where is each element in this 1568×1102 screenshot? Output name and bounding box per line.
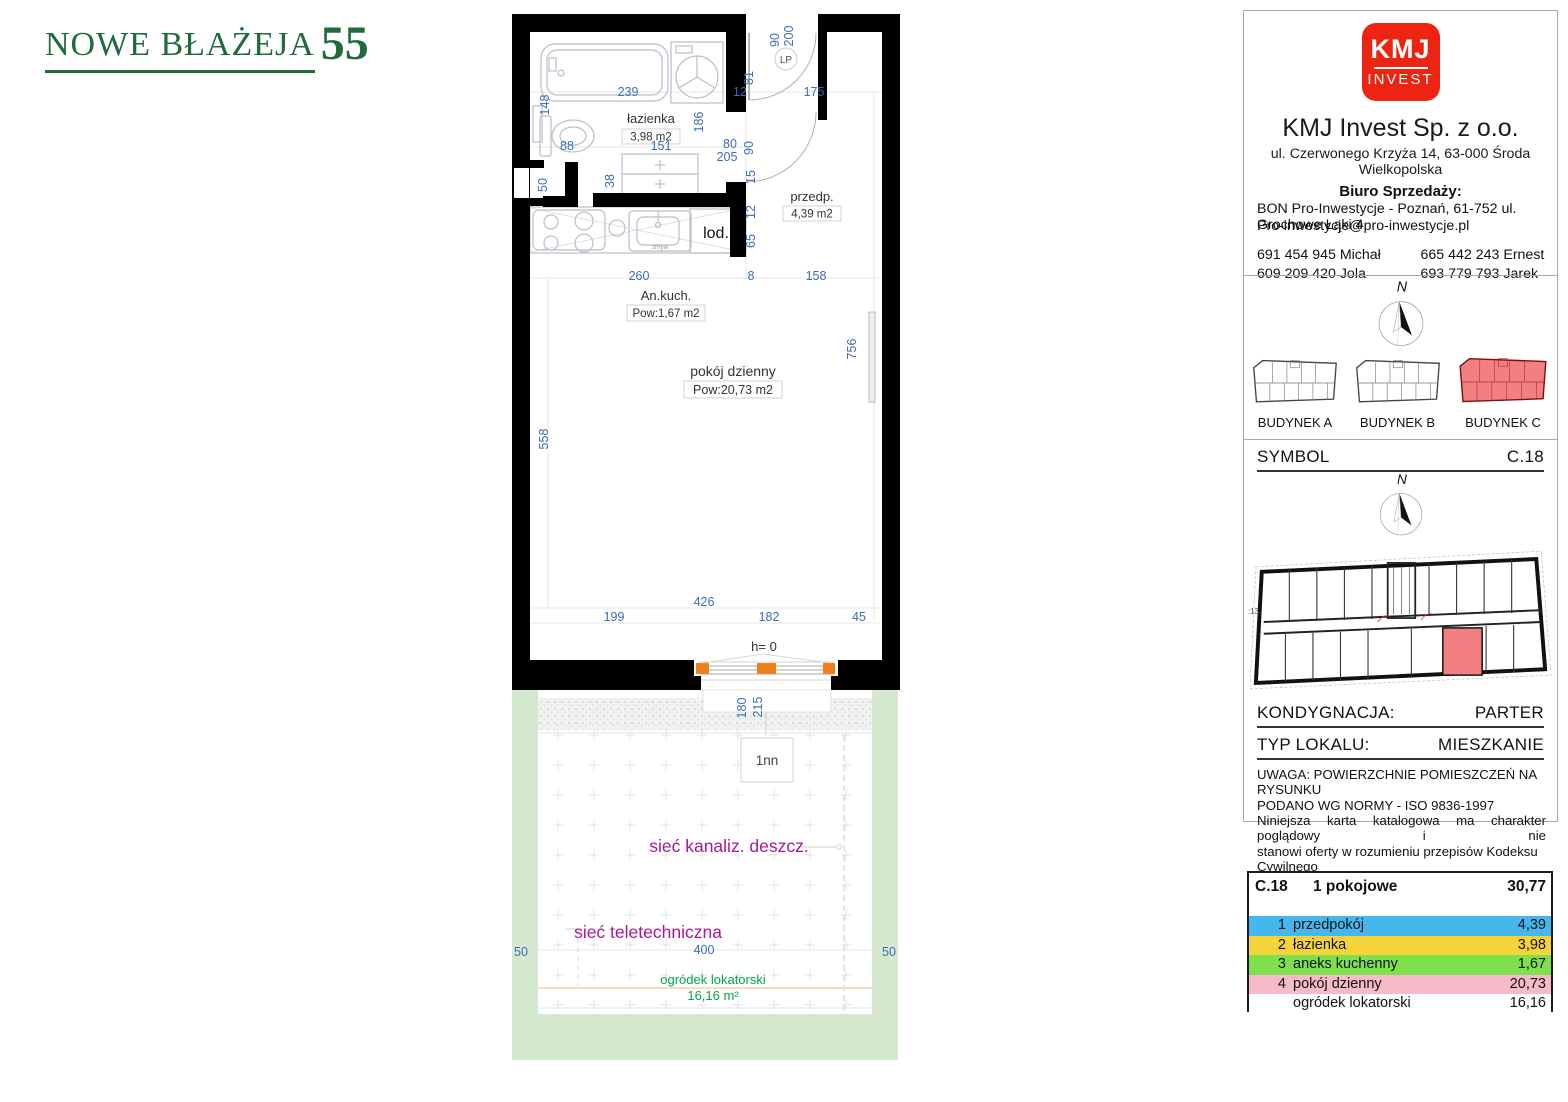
dim-88: 88 [560,139,574,153]
row-name: przedpokój [1293,916,1518,936]
dim-8: 8 [748,269,755,283]
disclaimer-line4: stanowi oferty w rozumieniu przepisów Ko… [1257,844,1546,875]
type-row: TYP LOKALU: MIESZKANIE [1257,735,1544,760]
window-marker-center [757,663,776,674]
dim-65: 65 [744,234,758,248]
row-area: 4,39 [1518,916,1551,936]
dim-50: 50 [536,178,550,192]
compass-icon: N [1368,471,1434,543]
dim-12k: 12 [744,205,758,219]
compass-icon: N [1366,278,1436,354]
garden-area-label: 16,16 m² [687,988,739,1003]
row-num: 4 [1249,975,1293,995]
kmj-logo-rule [1374,67,1428,69]
phone-jarek: 693 779 793 Jarek [1421,266,1549,282]
buildings-row: BUDYNEK A BUDYNEK B [1250,355,1551,430]
garden-strip-bottom [512,1014,898,1060]
hall-area: 4,39 m2 [791,209,833,221]
storm-sewer-label: sieć kanaliz. deszcz. [649,836,809,856]
dim-bath-door-h: 205 [717,150,738,164]
dim-12-top: 12 [733,85,747,99]
dim-180: 180 [735,698,749,719]
building-a: BUDYNEK A [1250,357,1340,430]
garden-marker-label: 1nn [756,753,779,768]
living-name: pokój dzienny [690,363,776,379]
company-address: ul. Czerwonego Krzyża 14, 63-000 Środa W… [1244,146,1557,178]
kitchen-area: Pow:1,67 m2 [632,308,699,320]
building-c-label: BUDYNEK C [1455,415,1551,430]
row-area: 16,16 [1510,994,1551,1014]
garden-strip-left [512,690,538,1060]
sink-label: zmyw [652,244,669,251]
disclaimer-line3: Niniejsza karta katalogowa ma charakter … [1257,813,1546,844]
building-a-label: BUDYNEK A [1250,415,1340,430]
area-table: C.18 1 pokojowe 30,77 1 przedpokój 4,39 … [1247,871,1553,1012]
svg-text:N: N [1397,472,1407,487]
apartment-floor [512,14,900,690]
type-value: MIESZKANIE [1438,735,1544,755]
dim-175: 175 [804,85,825,99]
dim-door-w: 90 [768,33,782,47]
row-name: pokój dzienny [1293,975,1510,995]
type-label: TYP LOKALU: [1257,735,1370,755]
window-height-label: h= 0 [751,639,777,654]
dim-199: 199 [604,610,625,624]
dim-bath-door-w: 80 [723,137,737,151]
storey-plan: :13 [1248,543,1553,699]
living-area: Pow:20,73 m2 [693,383,773,397]
table-total-area: 30,77 [1507,878,1546,902]
row-area: 1,67 [1518,955,1551,975]
dim-558: 558 [537,429,551,450]
symbol-row: SYMBOL C.18 [1257,447,1544,472]
table-spacer [1249,902,1551,916]
row-name: aneks kuchenny [1293,955,1518,975]
sales-office-heading: Biuro Sprzedaży: [1244,183,1557,200]
dim-151: 151 [651,139,672,153]
info-panel: KMJ INVEST KMJ Invest Sp. z o.o. ul. Cze… [1243,10,1558,822]
dim-90b: 90 [742,141,756,155]
company-name: KMJ Invest Sp. z o.o. [1244,114,1557,143]
kmj-logo-subtext: INVEST [1362,71,1440,88]
dim-garden-50-right: 50 [882,945,896,959]
phone-michal: 691 454 945 Michał [1257,247,1421,263]
catalog-page: NOWE BŁAŻEJA55 [0,0,1568,1102]
kmj-logo-text: KMJ [1362,34,1440,65]
threshold [703,690,831,712]
row-num: 1 [1249,916,1293,936]
entry-point-label: LP [780,55,793,66]
dim-158: 158 [806,269,827,283]
table-row-kitchen: 3 aneks kuchenny 1,67 [1249,955,1551,975]
garden-strip-right [872,690,898,1060]
disclaimer-line2: PODANO WG NORMY - ISO 9836-1997 [1257,798,1546,813]
dim-door-h: 200 [782,26,796,47]
window-marker-left [696,663,709,674]
dim-81: 81 [742,71,756,85]
floor-value: PARTER [1475,703,1544,723]
phone-list: 691 454 945 Michał 665 442 243 Ernest 60… [1257,247,1549,282]
row-area: 20,73 [1510,975,1551,995]
garden-area: 1nn sieć kanaliz. deszcz. sieć teletechn… [512,690,898,1060]
dim-garden-50-left: 50 [514,945,528,959]
dim-182: 182 [759,610,780,624]
dim-148: 148 [538,95,552,116]
building-b: BUDYNEK B [1353,357,1443,430]
dim-260: 260 [629,269,650,283]
hall-name: przedp. [790,189,833,204]
dim-426: 426 [694,595,715,609]
divider [1244,275,1557,276]
row-area: 3,98 [1518,936,1551,956]
row-name: łazienka [1293,936,1518,956]
row-name: ogródek lokatorski [1293,994,1510,1014]
bathroom-name: łazienka [627,111,675,126]
phone-ernest: 665 442 243 Ernest [1421,247,1549,263]
garden-name-label: ogródek lokatorski [660,972,766,987]
dim-garden-400: 400 [694,943,715,957]
row-num: 2 [1249,936,1293,956]
window-marker-right [823,663,835,674]
dim-756: 756 [845,339,859,360]
floor-label: KONDYGNACJA: [1257,703,1395,723]
svg-text:N: N [1396,280,1407,296]
row-num: 3 [1249,955,1293,975]
telecom-label: sieć teletechniczna [574,922,722,942]
dim-215: 215 [751,697,765,718]
radiator [869,312,875,402]
symbol-label: SYMBOL [1257,447,1330,467]
row-num [1249,994,1293,1014]
symbol-value: C.18 [1507,447,1544,467]
table-row-living: 4 pokój dzienny 20,73 [1249,975,1551,995]
kmj-logo: KMJ INVEST [1362,23,1440,101]
plan-scale-note: :13 [1248,607,1260,616]
dim-15: 15 [744,170,758,184]
floor-row: KONDYGNACJA: PARTER [1257,703,1544,728]
dim-45: 45 [852,610,866,624]
table-row-garden: ogródek lokatorski 16,16 [1249,994,1551,1014]
fridge-label: lod. [703,225,729,242]
building-b-label: BUDYNEK B [1353,415,1443,430]
table-symbol: C.18 [1255,878,1313,902]
table-row-hall: 1 przedpokój 4,39 [1249,916,1551,936]
kitchen-name: An.kuch. [641,288,692,303]
dim-239: 239 [618,85,639,99]
disclaimer: UWAGA: POWIERZCHNIE POMIESZCZEŃ NA RYSUN… [1257,767,1546,874]
building-c-highlighted: BUDYNEK C [1455,355,1551,430]
dim-38: 38 [603,174,617,188]
highlighted-unit [1443,628,1482,675]
sales-office-email: Pro-inwestycje@pro-inwestycje.pl [1257,218,1469,234]
table-row-bathroom: 2 łazienka 3,98 [1249,936,1551,956]
wall-niche [514,168,529,198]
divider [1244,439,1557,440]
dim-186: 186 [692,112,706,133]
disclaimer-line1: UWAGA: POWIERZCHNIE POMIESZCZEŃ NA RYSUN… [1257,767,1546,798]
area-table-header: C.18 1 pokojowe 30,77 [1249,873,1551,902]
table-type: 1 pokojowe [1313,878,1507,902]
